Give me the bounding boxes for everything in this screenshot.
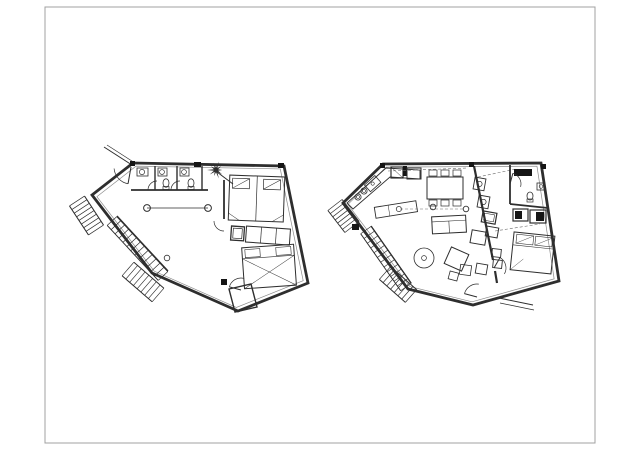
sofa: [432, 215, 467, 234]
line: [272, 215, 283, 222]
sheet-border: [45, 7, 595, 443]
line: [275, 228, 276, 244]
ceiling-dash-2: [495, 224, 540, 231]
drawing-sheet: [0, 0, 640, 453]
wall-tick-1: [194, 162, 201, 167]
bed-double-1: [228, 175, 285, 222]
rect: [477, 195, 490, 209]
bedroom1-door-arc: [214, 221, 224, 231]
stove-burner-2-inner: [363, 190, 366, 193]
sink-3-bowl: [182, 170, 187, 175]
kitchen-island: [374, 201, 417, 218]
floor-plan-canvas: [0, 0, 640, 453]
wardrobe-1-fill: [515, 211, 522, 219]
stair-wall: [371, 226, 411, 283]
column-3: [164, 255, 170, 261]
line: [232, 178, 249, 189]
line: [388, 205, 390, 216]
rect: [245, 249, 261, 258]
entrance-door-arc: [464, 284, 478, 297]
wall-tick-r1: [469, 162, 474, 167]
wall-tick-kitchen: [403, 166, 407, 176]
sink-2-bowl: [160, 170, 165, 175]
line: [256, 176, 258, 221]
line: [449, 221, 450, 233]
dining-chair: [429, 200, 437, 206]
line: [510, 258, 523, 271]
outer-wall: [343, 163, 559, 305]
side-table-1: [448, 271, 459, 281]
partition-wall: [474, 166, 493, 260]
entry-ramp-line-2: [107, 145, 135, 163]
wall-tick-4: [221, 279, 227, 285]
wall-tick-2: [278, 163, 284, 168]
stair-run-ext-lower: [122, 262, 164, 302]
wardrobe-band: [231, 225, 291, 245]
round-rug-center: [422, 256, 427, 261]
line: [228, 213, 239, 220]
toilet-2: [188, 179, 194, 187]
inner-wall-line: [97, 166, 303, 307]
armchair: [444, 247, 469, 271]
stair-run-ext-lower: [379, 267, 416, 303]
line: [263, 179, 280, 190]
wall-tick-3: [130, 161, 135, 166]
rect: [276, 246, 292, 255]
tv-stand: [470, 230, 487, 245]
entry-ramp-line-1: [104, 147, 132, 165]
toilet-1: [163, 179, 169, 187]
rect: [374, 201, 417, 218]
rect: [242, 244, 297, 289]
floor-plan-left: [69, 145, 308, 312]
bed-double-2: [242, 244, 297, 289]
wall-tick-stair: [352, 224, 359, 230]
partition-wall-2: [495, 271, 497, 283]
stove-burner-1-inner: [357, 196, 360, 199]
line: [260, 227, 261, 243]
wall-tick-bath: [541, 164, 546, 169]
dining-chair: [441, 170, 449, 176]
sink-1-bowl: [139, 169, 144, 174]
console-2: [477, 195, 490, 209]
floor-plan-right: [328, 162, 559, 310]
side-table-3: [475, 263, 488, 275]
dining-chair: [429, 170, 437, 176]
dining-chair: [453, 200, 461, 206]
side-table-2: [459, 264, 471, 275]
rect: [245, 226, 290, 245]
bathroom-wall-bottom: [510, 204, 548, 208]
wardrobe-2-fill: [536, 212, 544, 221]
round-rug: [414, 248, 434, 268]
dining-table: [427, 177, 463, 199]
column-5: [463, 206, 469, 212]
wall-tick-r2: [380, 163, 385, 168]
dining-chair: [453, 170, 461, 176]
bedroom1-door-leaf: [217, 172, 233, 184]
rect: [233, 228, 243, 239]
dining-chair: [441, 200, 449, 206]
line: [513, 245, 554, 249]
bath-door-arc-2: [171, 181, 180, 190]
